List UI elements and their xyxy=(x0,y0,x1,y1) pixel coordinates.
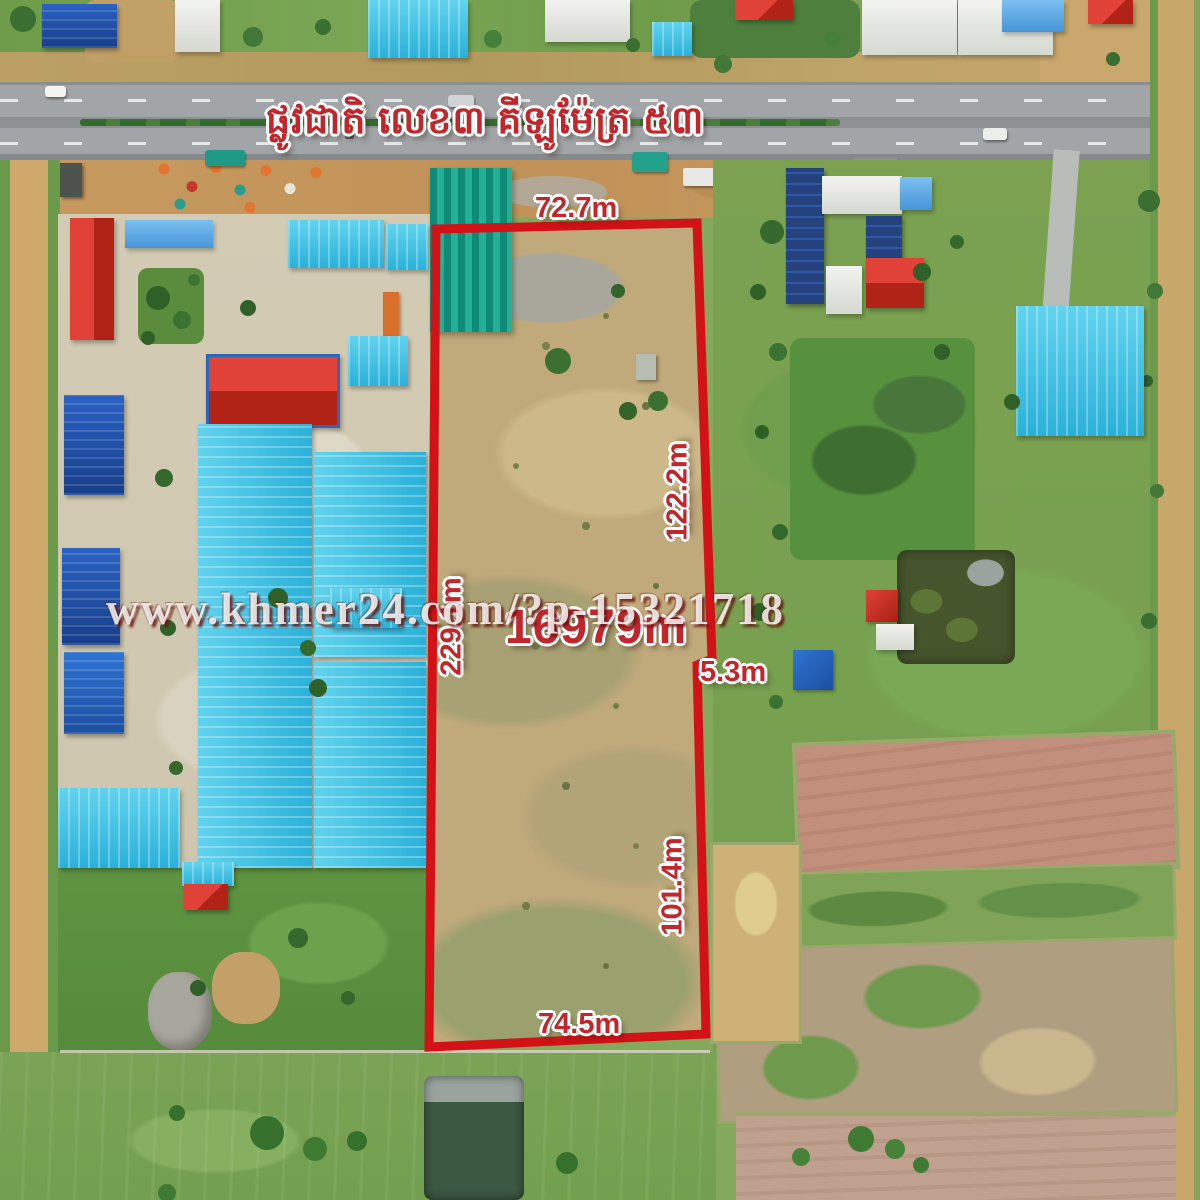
measurement-top-label: 72.7m xyxy=(535,192,617,225)
aerial-land-photo: 72.7m 229.1m 122.2m 5.3m 101.4m 74.5m 16… xyxy=(0,0,1200,1200)
measurement-right-step-label: 5.3m xyxy=(700,656,766,689)
road-name-caption: ផ្លូវជាតិ លេខ៣ គីឡូម៉ែត្រ ៥៣ xyxy=(266,96,704,152)
watermark-text: www.khmer24.com/?p-15321718 xyxy=(106,583,785,635)
measurement-right-upper-label: 122.2m xyxy=(662,440,695,544)
measurement-right-lower-label: 101.4m xyxy=(657,835,690,939)
measurement-bottom-label: 74.5m xyxy=(538,1008,620,1041)
